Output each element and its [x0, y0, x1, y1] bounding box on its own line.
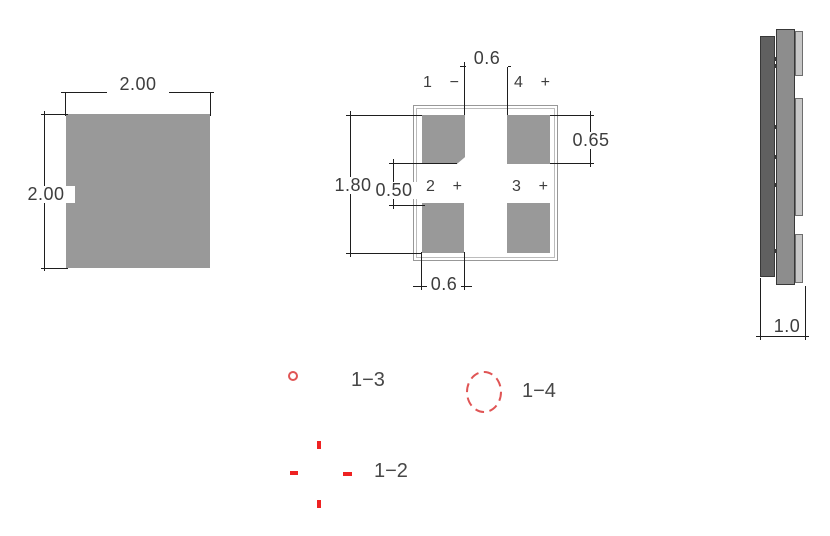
marking-label-1-2: 1−2: [374, 461, 408, 481]
dim-overall-label: 1.80: [330, 177, 376, 194]
marking-small-circle-icon: [288, 371, 298, 381]
dim-overall-ext-top: [346, 115, 422, 116]
dim-width-ext-right: [210, 92, 211, 116]
pin-2-polarity: +: [453, 179, 462, 195]
pin-1-number: 1: [423, 75, 432, 91]
marking-dash-top: [317, 441, 321, 449]
package-dimension-drawing: 2.00 2.00 0.6 1 − 4 + 2: [0, 0, 830, 536]
side-view-lid: [760, 36, 775, 277]
dim-thickness-label: 1.0: [769, 318, 805, 335]
dim-row-gap-ext-top: [389, 163, 457, 164]
dim-thickness-line: [756, 336, 809, 337]
side-view-castellation-top: [795, 31, 803, 76]
seam-mark: [774, 249, 777, 253]
dim-overall-ext-bottom: [346, 253, 422, 254]
pin-label-2: 2 +: [426, 179, 462, 195]
dim-width-ext-left: [65, 92, 66, 116]
pin-2-number: 2: [426, 179, 435, 195]
dim-pad-width-ext-left: [421, 252, 422, 290]
pin-3-number: 3: [512, 179, 521, 195]
pin-4-polarity: +: [541, 75, 550, 91]
side-view-castellation-bottom: [795, 234, 803, 283]
pin-label-3: 3 +: [512, 179, 548, 195]
seam-mark: [774, 64, 777, 68]
seam-mark: [774, 125, 777, 129]
pad-1: [422, 115, 465, 164]
top-view-body: [66, 114, 210, 268]
side-view-base: [776, 29, 795, 285]
dim-row-gap-label: 0.50: [371, 182, 417, 199]
dim-thickness-ext-left: [760, 278, 761, 340]
seam-mark: [774, 155, 777, 159]
dim-center-gap-ext-right: [507, 62, 508, 115]
seam-mark: [774, 57, 777, 61]
dim-pad-width-ext-right: [464, 252, 465, 290]
dim-width-label: 2.00: [107, 76, 169, 93]
dim-pad-height-ext-bottom: [550, 163, 594, 164]
pin-1-polarity: −: [450, 75, 459, 91]
dim-pad-width-label: 0.6: [427, 276, 461, 293]
dim-thickness-ext-right: [805, 286, 806, 340]
pin-3-polarity: +: [539, 179, 548, 195]
dim-height-ext-bottom: [41, 268, 68, 269]
pad-4: [507, 115, 550, 164]
pad-2: [422, 203, 464, 253]
dim-row-gap-ext-bottom: [389, 205, 425, 206]
dim-center-gap-ext-left: [464, 62, 465, 115]
dim-pad-height-ext-top: [550, 115, 594, 116]
side-view-castellation-middle: [795, 98, 803, 216]
marking-dash-left: [290, 471, 298, 475]
marking-dashed-circle-icon: [463, 369, 507, 416]
seam-mark: [774, 183, 777, 187]
dim-height-ext-top: [41, 114, 68, 115]
dim-height-label: 2.00: [17, 186, 75, 203]
pad-3: [507, 203, 550, 253]
pin-4-number: 4: [514, 75, 523, 91]
marking-dash-bottom: [317, 500, 321, 508]
dim-center-gap-label: 0.6: [466, 50, 508, 67]
pin-label-4: 4 +: [514, 75, 550, 91]
pin-label-1: 1 −: [423, 75, 459, 91]
marking-dash-right: [343, 472, 352, 476]
marking-label-1-4: 1−4: [522, 381, 556, 401]
marking-label-1-3: 1−3: [351, 370, 385, 390]
dim-pad-height-label: 0.65: [568, 132, 614, 149]
